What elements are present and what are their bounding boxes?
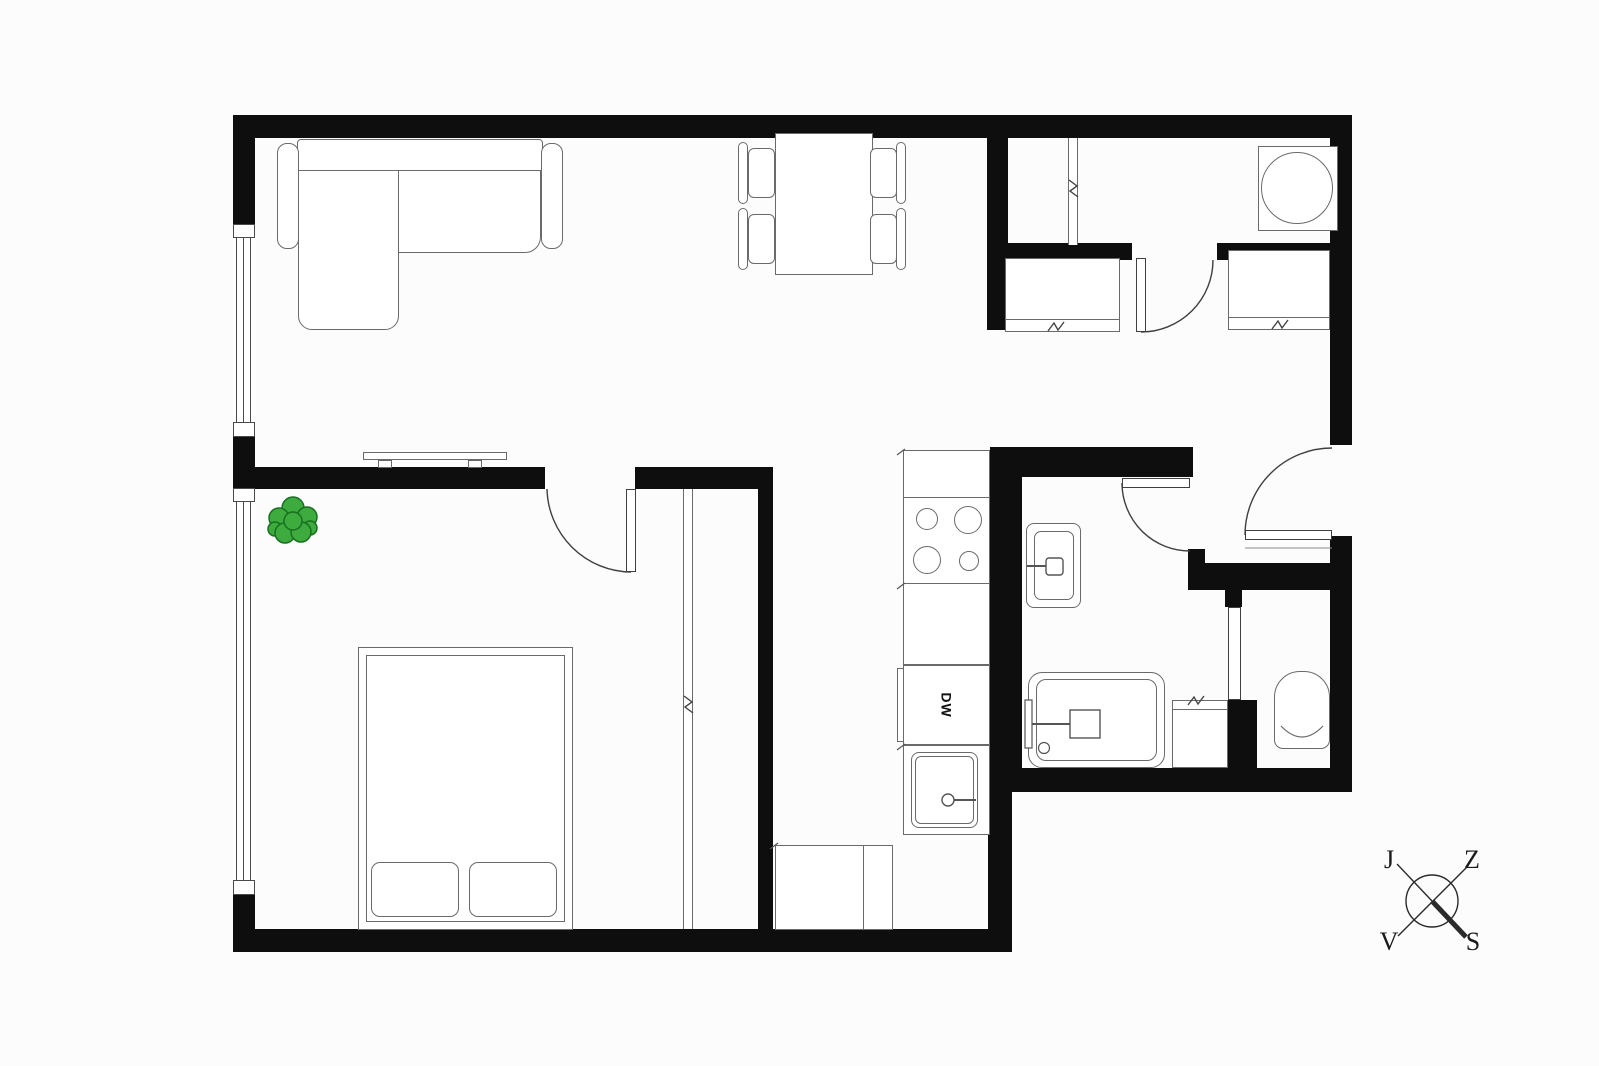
sofa-seat — [398, 170, 541, 253]
bathroom-door-arc — [1122, 483, 1190, 551]
hall-closet-left — [1005, 258, 1120, 332]
bathroom-sink-basin — [1034, 531, 1074, 600]
wall-bath-bottom-exterior — [1012, 768, 1352, 792]
counter-divider-line — [863, 846, 864, 929]
wall-bathroom-top — [1022, 447, 1193, 477]
compass-label-west-south: V — [1380, 927, 1399, 956]
chair-seat — [748, 148, 775, 198]
sofa-armrest-right — [541, 143, 563, 249]
sofa-armrest-left — [277, 143, 299, 249]
tv — [363, 452, 507, 460]
entrance-door-arc — [1245, 448, 1332, 535]
compass-needle-thick — [1432, 901, 1466, 937]
sofa-chaise — [298, 170, 399, 330]
cabinet-front-line — [1173, 709, 1227, 710]
kitchen-cabinet — [903, 450, 990, 498]
compass-label-east-north: Z — [1464, 845, 1480, 874]
bed-pillow — [371, 862, 459, 917]
bedroom-wardrobe-front — [683, 489, 693, 929]
sofa-back-cushion — [297, 139, 543, 172]
window-cap — [233, 224, 255, 238]
living-room-window — [233, 224, 255, 437]
chair-back — [738, 208, 748, 270]
compass-label-east-south: S — [1466, 927, 1480, 956]
bedroom-window — [233, 488, 255, 895]
wall-bedroom-top-right — [635, 467, 773, 489]
hall-closet-right — [1228, 250, 1330, 330]
kitchen-sink-basin — [915, 756, 974, 824]
window-pane — [233, 238, 255, 422]
window-cap — [233, 488, 255, 502]
window-cap — [233, 880, 255, 895]
cabinet-corner-ticks — [770, 449, 905, 849]
compass-cross-line — [1398, 866, 1468, 936]
dining-table — [775, 133, 873, 275]
washing-machine-drum — [1261, 152, 1333, 224]
chair-seat — [870, 214, 897, 264]
chair-seat — [870, 148, 897, 198]
utility-door-arc — [1141, 260, 1213, 332]
utility-room-door — [1136, 258, 1146, 332]
chair-back — [738, 142, 748, 204]
stove-burner — [916, 508, 938, 530]
compass: J Z V S — [1380, 845, 1481, 956]
stove-burner — [913, 546, 941, 574]
window-pane — [233, 502, 255, 880]
closet-front-line — [1229, 317, 1329, 318]
wall-step-vertical — [988, 770, 1012, 952]
bed-pillow — [469, 862, 557, 917]
closet-front-line — [1006, 319, 1119, 320]
wall-toilet-block — [1225, 700, 1257, 792]
compass-needle-thin — [1397, 864, 1432, 901]
toilet-door — [1228, 607, 1241, 700]
chair-seat — [748, 214, 775, 264]
stove-burner — [954, 506, 982, 534]
bedroom-door — [626, 489, 636, 572]
compass-circle — [1406, 875, 1458, 927]
bathroom-cabinet — [1172, 700, 1228, 768]
tv-mount — [468, 460, 482, 468]
wall-bottom-exterior — [233, 929, 1012, 952]
chair-back — [896, 208, 906, 270]
wall-toilet-stub — [1225, 590, 1242, 607]
wall-vestibule-bottom — [1188, 563, 1352, 590]
compass-label-west-north: J — [1384, 845, 1394, 874]
bathroom-door — [1122, 478, 1190, 488]
entrance-door — [1245, 530, 1332, 540]
wall-bedroom-top-left — [233, 467, 545, 489]
bedroom-door-arc — [547, 489, 631, 572]
kitchen-counter-bottom — [775, 845, 893, 930]
bathtub-inner — [1036, 679, 1157, 761]
floor-plan-canvas: DW — [0, 0, 1599, 1066]
utility-closet-front — [1068, 138, 1078, 245]
dishwasher-label: DW — [903, 665, 990, 745]
wall-bedroom-right — [758, 467, 773, 929]
kitchen-counter — [903, 583, 990, 665]
stove-burner — [959, 551, 979, 571]
plant — [268, 497, 317, 543]
window-cap — [233, 422, 255, 437]
wall-kitchen-bathroom — [990, 447, 1022, 780]
chair-back — [896, 142, 906, 204]
toilet — [1274, 671, 1330, 749]
tv-mount — [378, 460, 392, 468]
